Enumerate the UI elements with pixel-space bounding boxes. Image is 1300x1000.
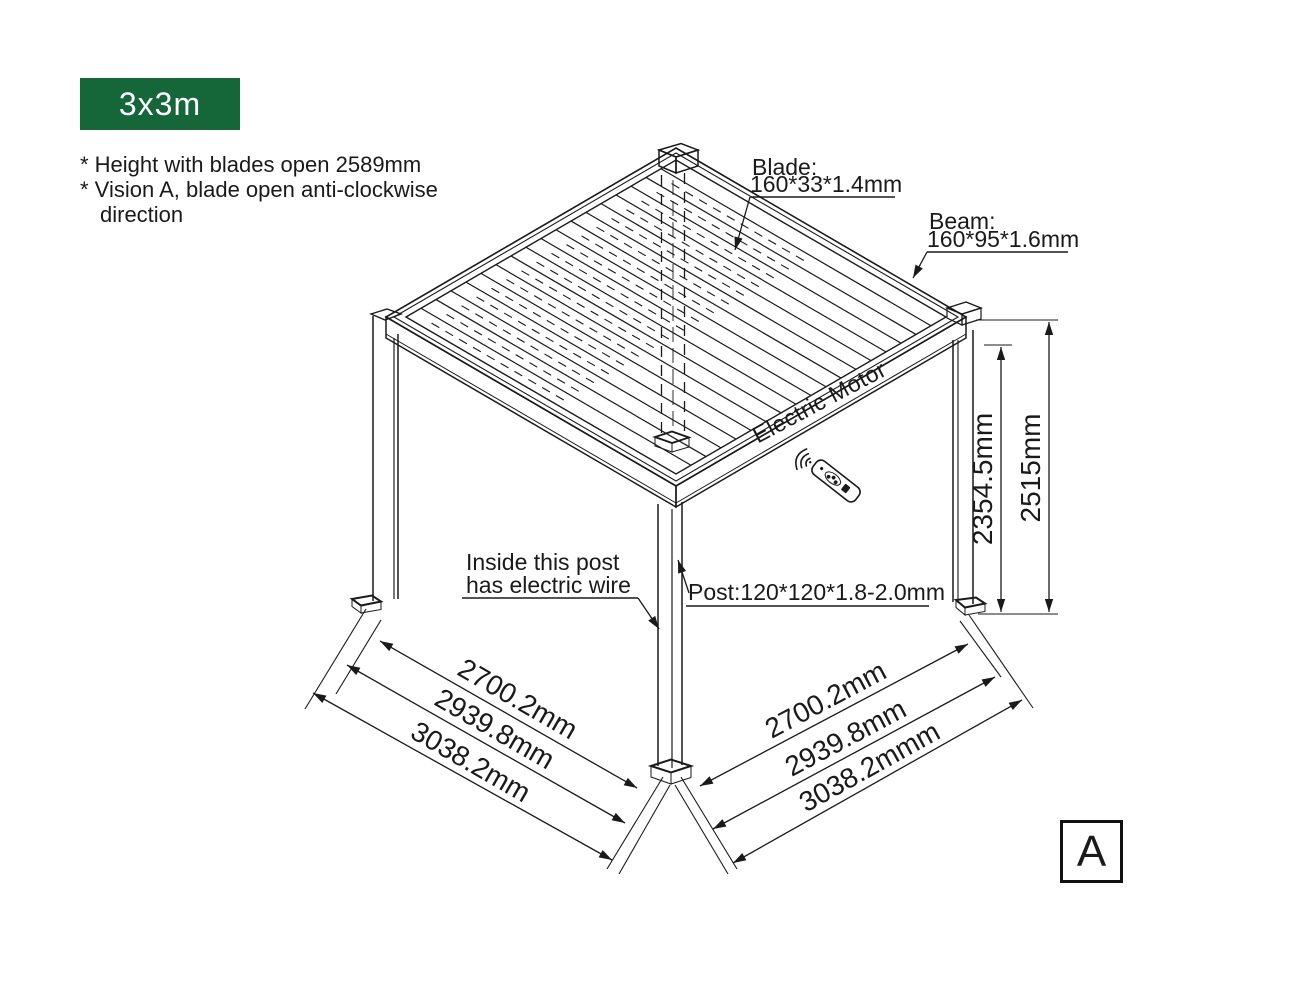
left-post: [371, 309, 401, 601]
front-post-foot: [651, 760, 691, 785]
post-callout: Post:120*120*1.8-2.0mm: [678, 560, 945, 606]
left-span-dimensions: 2700.2mm 2939.8mm 3038.2mm: [305, 609, 670, 874]
post-spec-label: Post:120*120*1.8-2.0mm: [688, 579, 945, 605]
blade-spec-label: 160*33*1.4mm: [750, 171, 902, 197]
right-post-foot: [956, 598, 985, 616]
inside-post-callout: Inside this post has electric wire: [462, 549, 659, 629]
left-post-foot: [352, 596, 381, 614]
right-span-dimensions: 2700.2mm 2939.8mm 3038.2mmm: [675, 615, 1033, 874]
inside-post-line2: has electric wire: [466, 572, 631, 598]
back-post-hidden: [655, 144, 698, 453]
dim-height-to-beam: 2354.5mm: [967, 413, 998, 545]
remote-control-icon: [809, 458, 862, 505]
height-dimensions: 2354.5mm 2515mm: [967, 320, 1058, 614]
electric-motor-label: Electric Motor: [748, 356, 891, 448]
louver-blades: [421, 169, 931, 466]
front-post: [658, 502, 682, 768]
wifi-signal-icon: [796, 449, 812, 469]
beam-callout: Beam: 160*95*1.6mm: [913, 208, 1079, 278]
roof-frame: [386, 148, 966, 507]
pergola-technical-drawing: Electric Motor Blade: 160*33*1.4mm Beam:…: [0, 0, 1300, 1000]
beam-spec-label: 160*95*1.6mm: [927, 226, 1079, 252]
dim-height-overall: 2515mm: [1015, 414, 1046, 523]
